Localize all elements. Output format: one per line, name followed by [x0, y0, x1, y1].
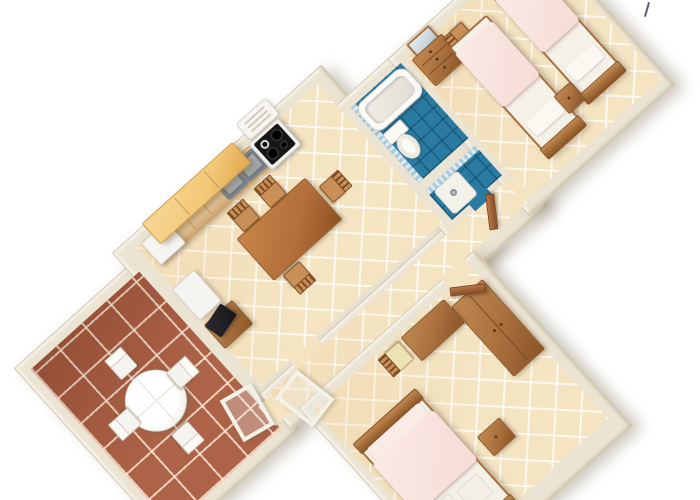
render-artifact	[644, 2, 650, 17]
apartment-plan	[0, 0, 700, 500]
floorplan-render	[0, 0, 700, 500]
